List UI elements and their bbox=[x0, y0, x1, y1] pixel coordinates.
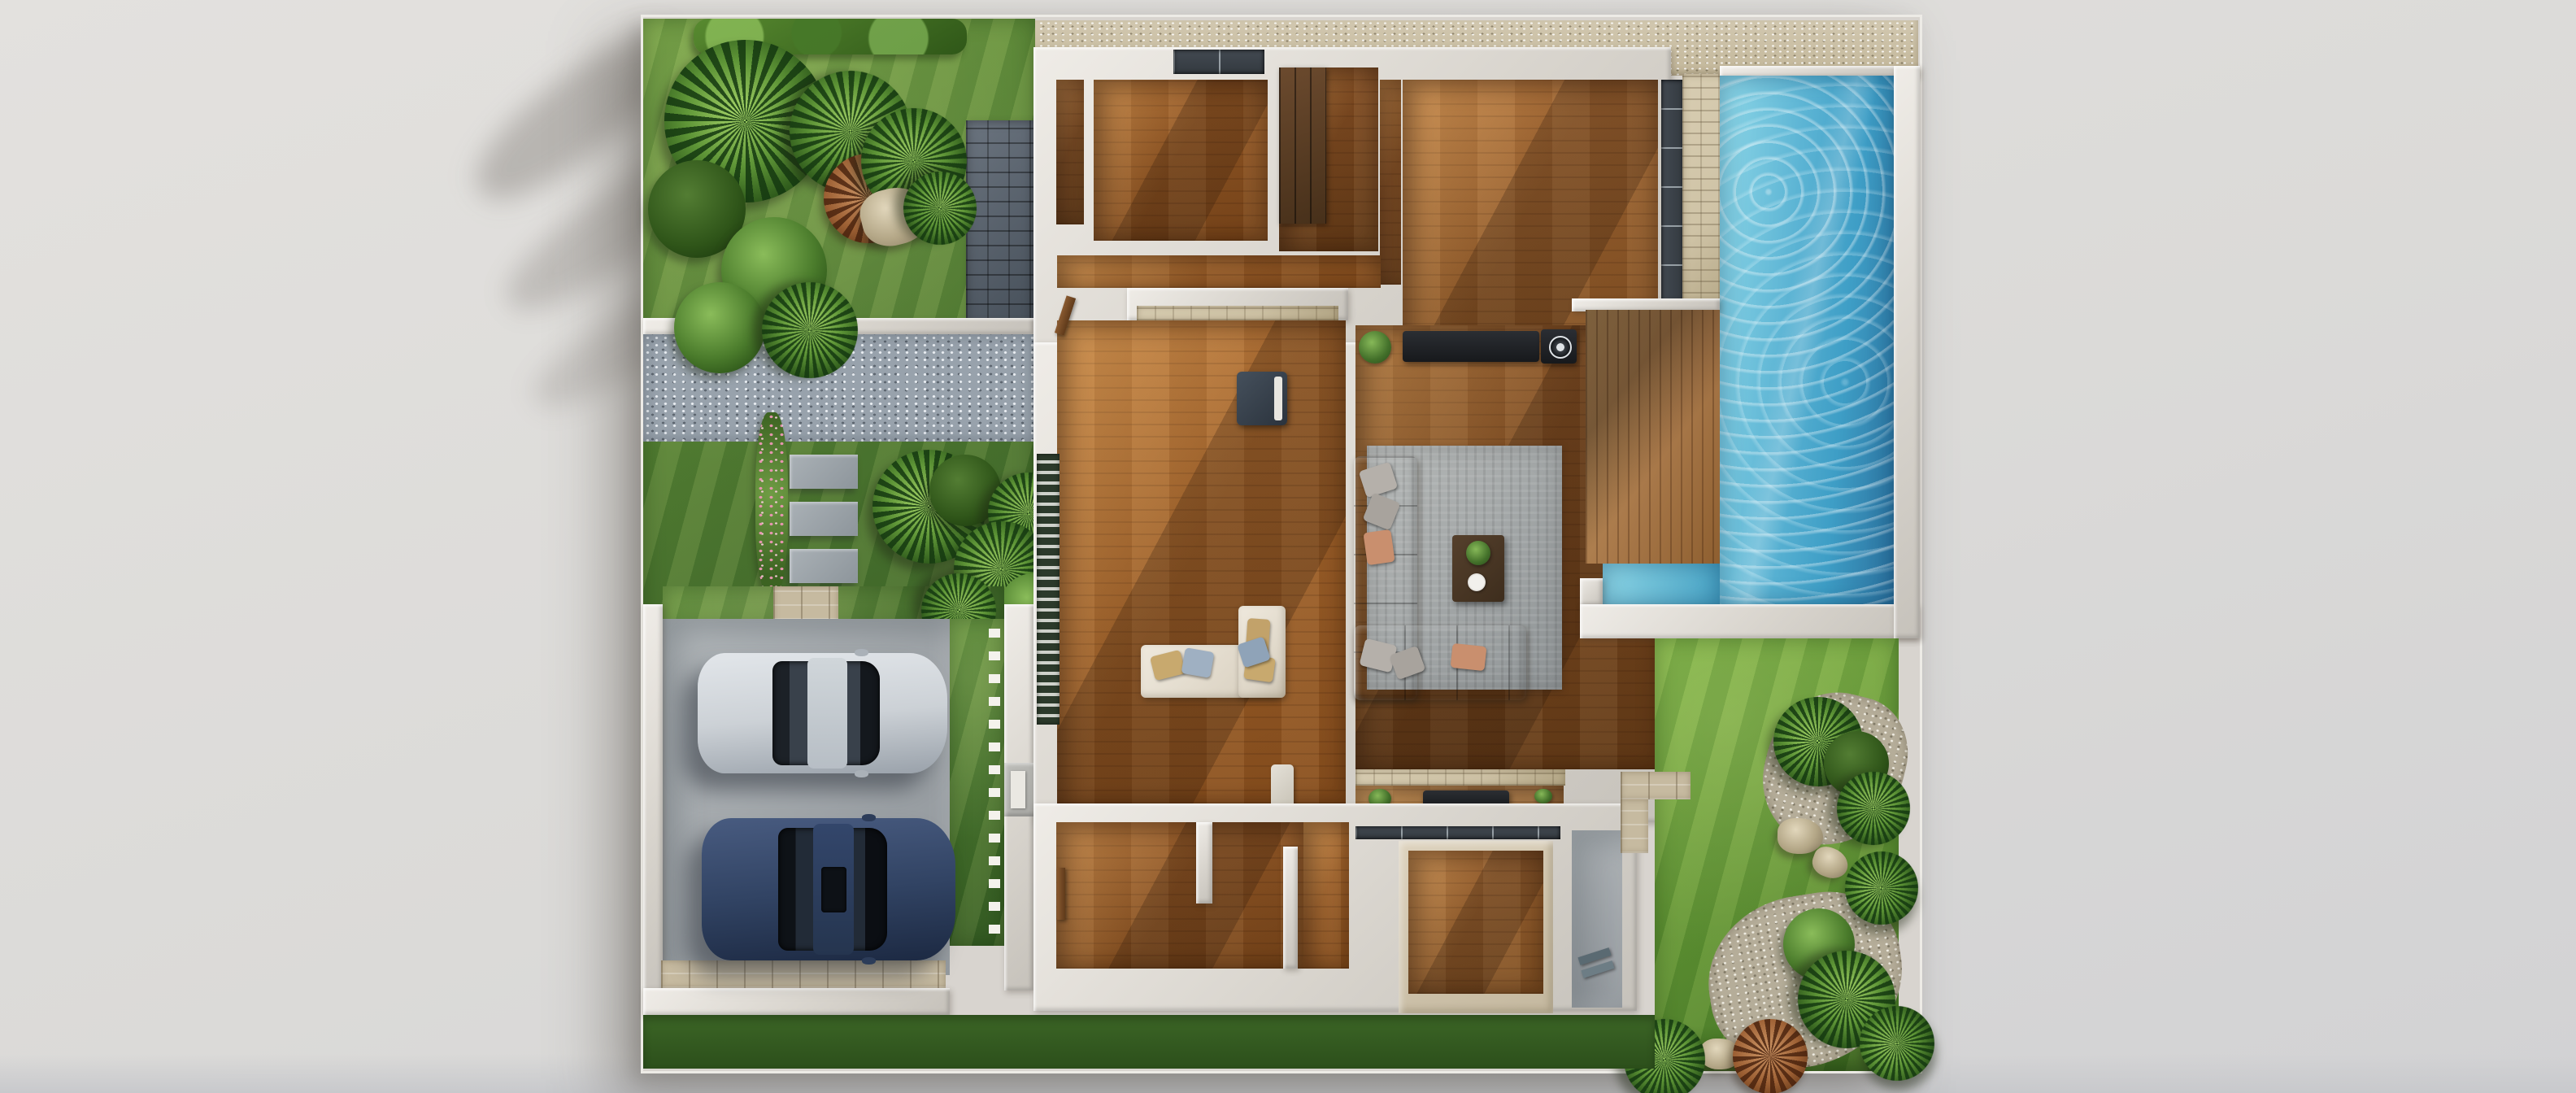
living-plant bbox=[1359, 331, 1391, 364]
car-roof bbox=[807, 658, 847, 769]
closet-room-floor bbox=[1056, 80, 1084, 224]
stepping-stone bbox=[790, 455, 858, 489]
driveway-west-wall bbox=[643, 604, 663, 1015]
door-mat bbox=[1011, 771, 1025, 808]
navy-sedan bbox=[702, 818, 955, 960]
terrace-pot bbox=[1534, 789, 1552, 803]
bench-pillow bbox=[1181, 647, 1214, 678]
driveway-apron-pavers bbox=[661, 960, 946, 988]
render-canvas bbox=[0, 0, 2576, 1093]
bedroom-top-left-floor bbox=[1094, 80, 1268, 241]
sunlight-shaft bbox=[1723, 76, 1881, 604]
upper-corridor-horizontal bbox=[1057, 255, 1381, 288]
wall-footing-dashes bbox=[989, 629, 1000, 942]
master-glazing bbox=[1661, 80, 1684, 305]
car-mirror bbox=[862, 957, 876, 965]
stepping-stone bbox=[790, 549, 858, 583]
silver-sedan bbox=[698, 653, 947, 773]
lawn-step-pavers bbox=[1621, 799, 1648, 853]
driveway-south-wall bbox=[643, 988, 950, 1015]
pool-east-rim bbox=[1894, 66, 1920, 638]
car-sunroof bbox=[821, 867, 846, 912]
hall-armchair-arm bbox=[1274, 377, 1282, 420]
partition-stub bbox=[1283, 847, 1298, 969]
terrace-threshold bbox=[1355, 769, 1565, 786]
sliding-window-band bbox=[1355, 826, 1560, 839]
car-mirror bbox=[855, 649, 868, 656]
bedroom-door-leaf bbox=[1057, 868, 1065, 920]
upper-corridor-vertical bbox=[1380, 80, 1401, 285]
ac-fan bbox=[1549, 336, 1572, 359]
wardrobe bbox=[1279, 67, 1326, 224]
sofa-pillow-accent bbox=[1451, 643, 1487, 671]
lawn-step-pavers bbox=[1621, 772, 1690, 799]
partition-stub bbox=[1196, 822, 1212, 904]
red-leaf-plant bbox=[1733, 1019, 1808, 1093]
car-mirror bbox=[855, 770, 868, 777]
bush bbox=[674, 282, 765, 373]
hall-window-slats bbox=[1037, 454, 1060, 725]
pool-south-rim bbox=[1580, 604, 1918, 638]
bedroom-bottom-left-floor bbox=[1056, 822, 1303, 969]
garden-stone-wall bbox=[966, 120, 1033, 334]
south-grass-band bbox=[643, 1015, 1655, 1069]
flower-bush bbox=[755, 412, 788, 594]
swimming-pool bbox=[1720, 76, 1894, 604]
bedroom-bottom-right-floor bbox=[1408, 851, 1543, 994]
serving-tray bbox=[1468, 573, 1486, 591]
bottom-corridor bbox=[1303, 822, 1349, 969]
tv-console bbox=[1403, 331, 1539, 362]
hall-stone-ledge bbox=[1137, 306, 1338, 320]
bedroom-window bbox=[1173, 50, 1264, 74]
side-patio bbox=[1572, 830, 1622, 1008]
pool-wall-stub bbox=[1580, 578, 1603, 606]
central-hall-floor bbox=[1057, 320, 1346, 803]
villa-plot bbox=[641, 15, 1922, 1073]
pool-deck bbox=[1586, 310, 1720, 564]
sofa-pillow-accent bbox=[1363, 529, 1395, 565]
pool-nook bbox=[1603, 564, 1720, 604]
table-plant bbox=[1466, 541, 1490, 565]
car-mirror bbox=[862, 814, 876, 821]
boulder bbox=[1778, 818, 1823, 854]
stepping-stone bbox=[790, 502, 858, 536]
